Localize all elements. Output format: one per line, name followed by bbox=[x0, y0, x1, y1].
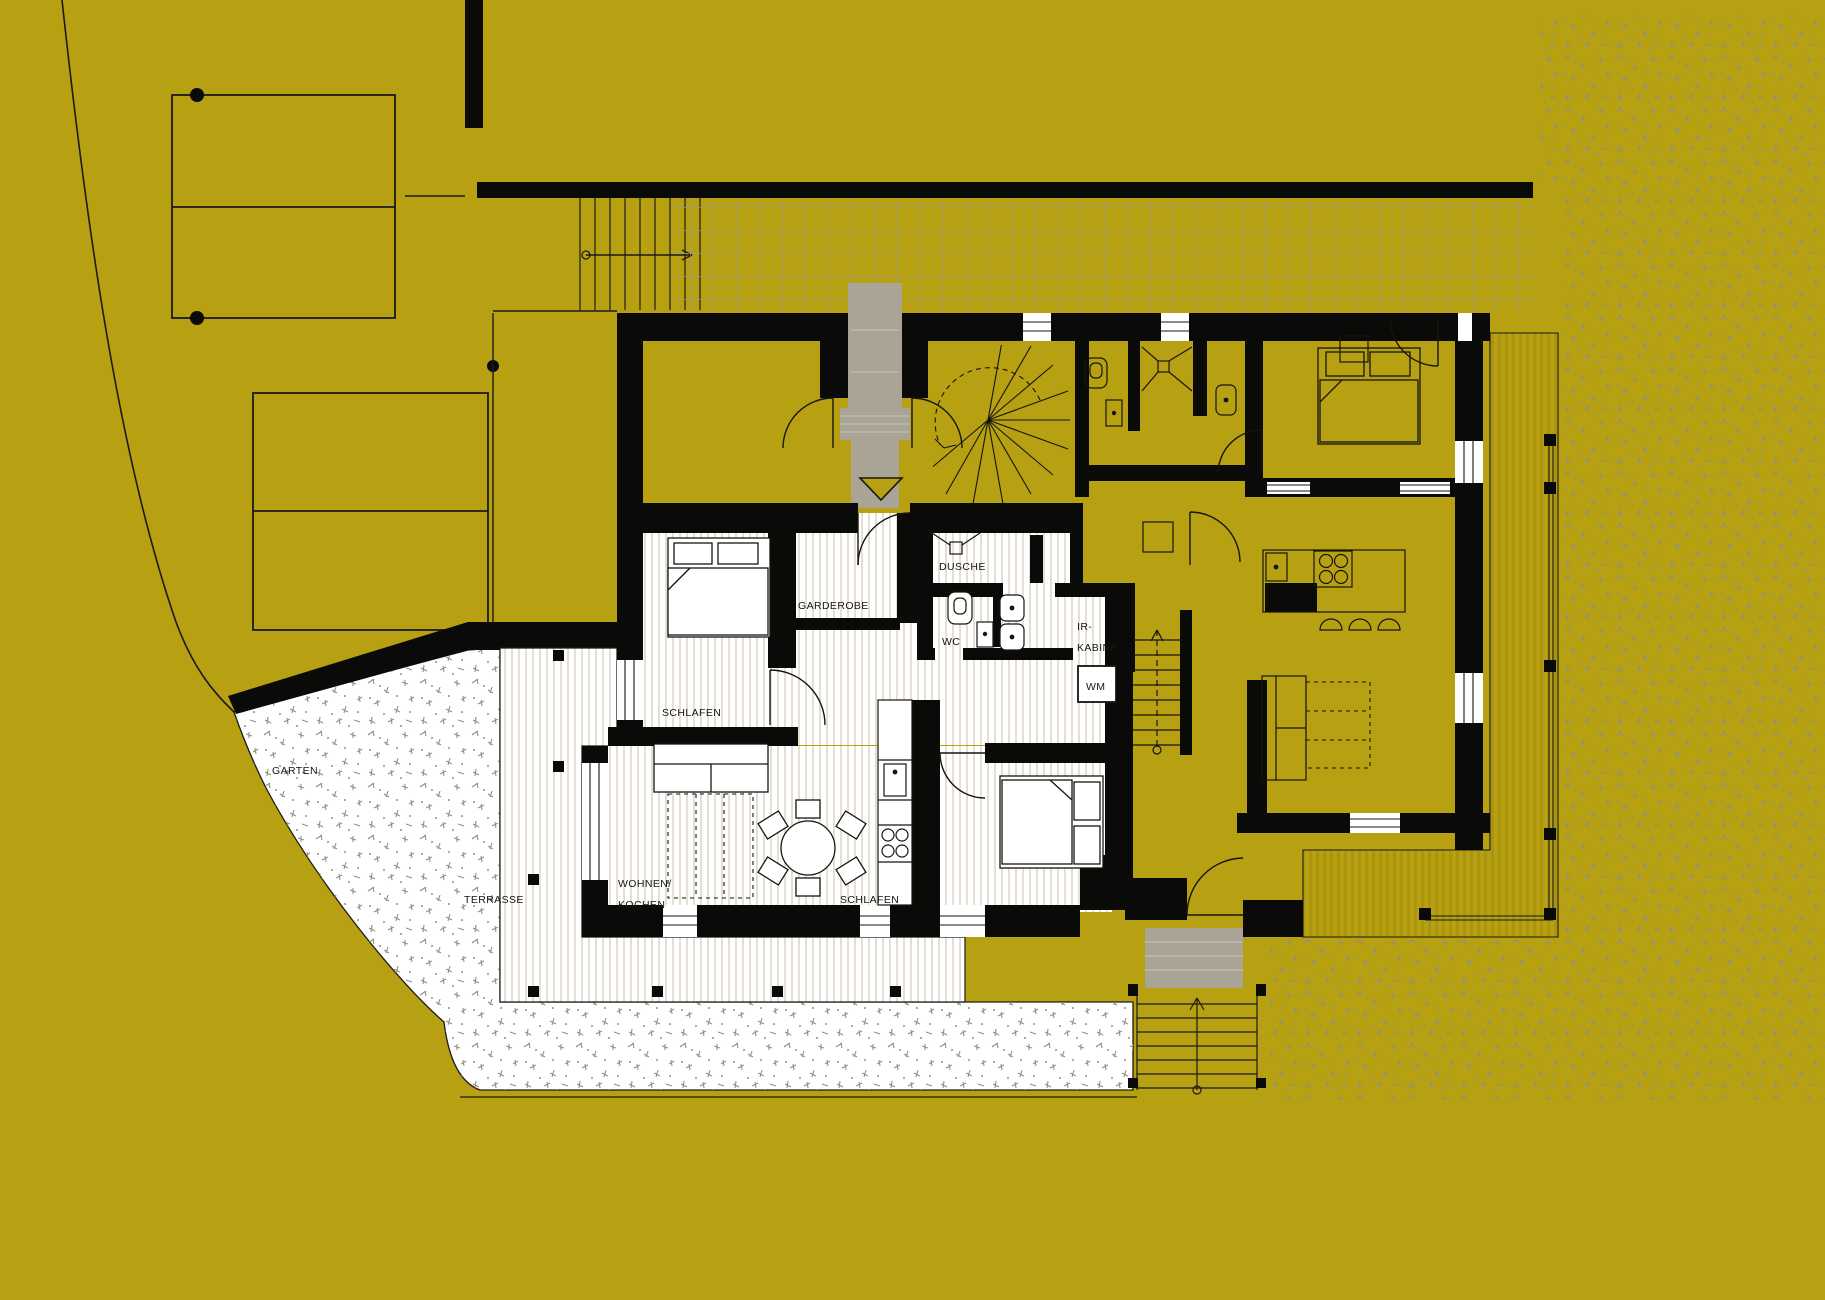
label-wc: WC bbox=[942, 636, 960, 648]
label-wohnen-kochen-line1: WOHNEN/ bbox=[618, 878, 672, 890]
label-garten: GARTEN bbox=[272, 765, 318, 777]
neighbour-south-wall bbox=[477, 182, 1533, 198]
bed-symbol-schlafen-top bbox=[668, 538, 770, 637]
label-garderobe: GARDEROBE bbox=[798, 600, 869, 612]
label-wm: WM bbox=[1086, 681, 1105, 693]
kitchen-counter-left-unit bbox=[878, 700, 912, 905]
sofa-symbol-left-unit bbox=[654, 744, 768, 792]
label-ir-kabine-line2: KABINE bbox=[1077, 642, 1118, 654]
floor-plan-drawing: SCHLAFEN GARDEROBE DUSCHE WC IR- KABINE … bbox=[0, 0, 1825, 1300]
bed-symbol-schlafen-bottom bbox=[1000, 776, 1103, 868]
label-ir-kabine-line1: IR- bbox=[1077, 621, 1092, 633]
tiled-courtyard bbox=[672, 198, 1533, 313]
neighbour-west-wall bbox=[465, 0, 483, 128]
label-wohnen-kochen-line2: KOCHEN bbox=[618, 899, 665, 911]
label-terrasse: TERRASSE bbox=[464, 894, 524, 906]
label-schlafen-bottom: SCHLAFEN bbox=[840, 894, 899, 906]
label-schlafen-top: SCHLAFEN bbox=[662, 707, 721, 719]
floor-plan-page: SCHLAFEN GARDEROBE DUSCHE WC IR- KABINE … bbox=[0, 0, 1825, 1300]
toilet-symbol-wc bbox=[948, 592, 972, 624]
label-dusche: DUSCHE bbox=[939, 561, 986, 573]
